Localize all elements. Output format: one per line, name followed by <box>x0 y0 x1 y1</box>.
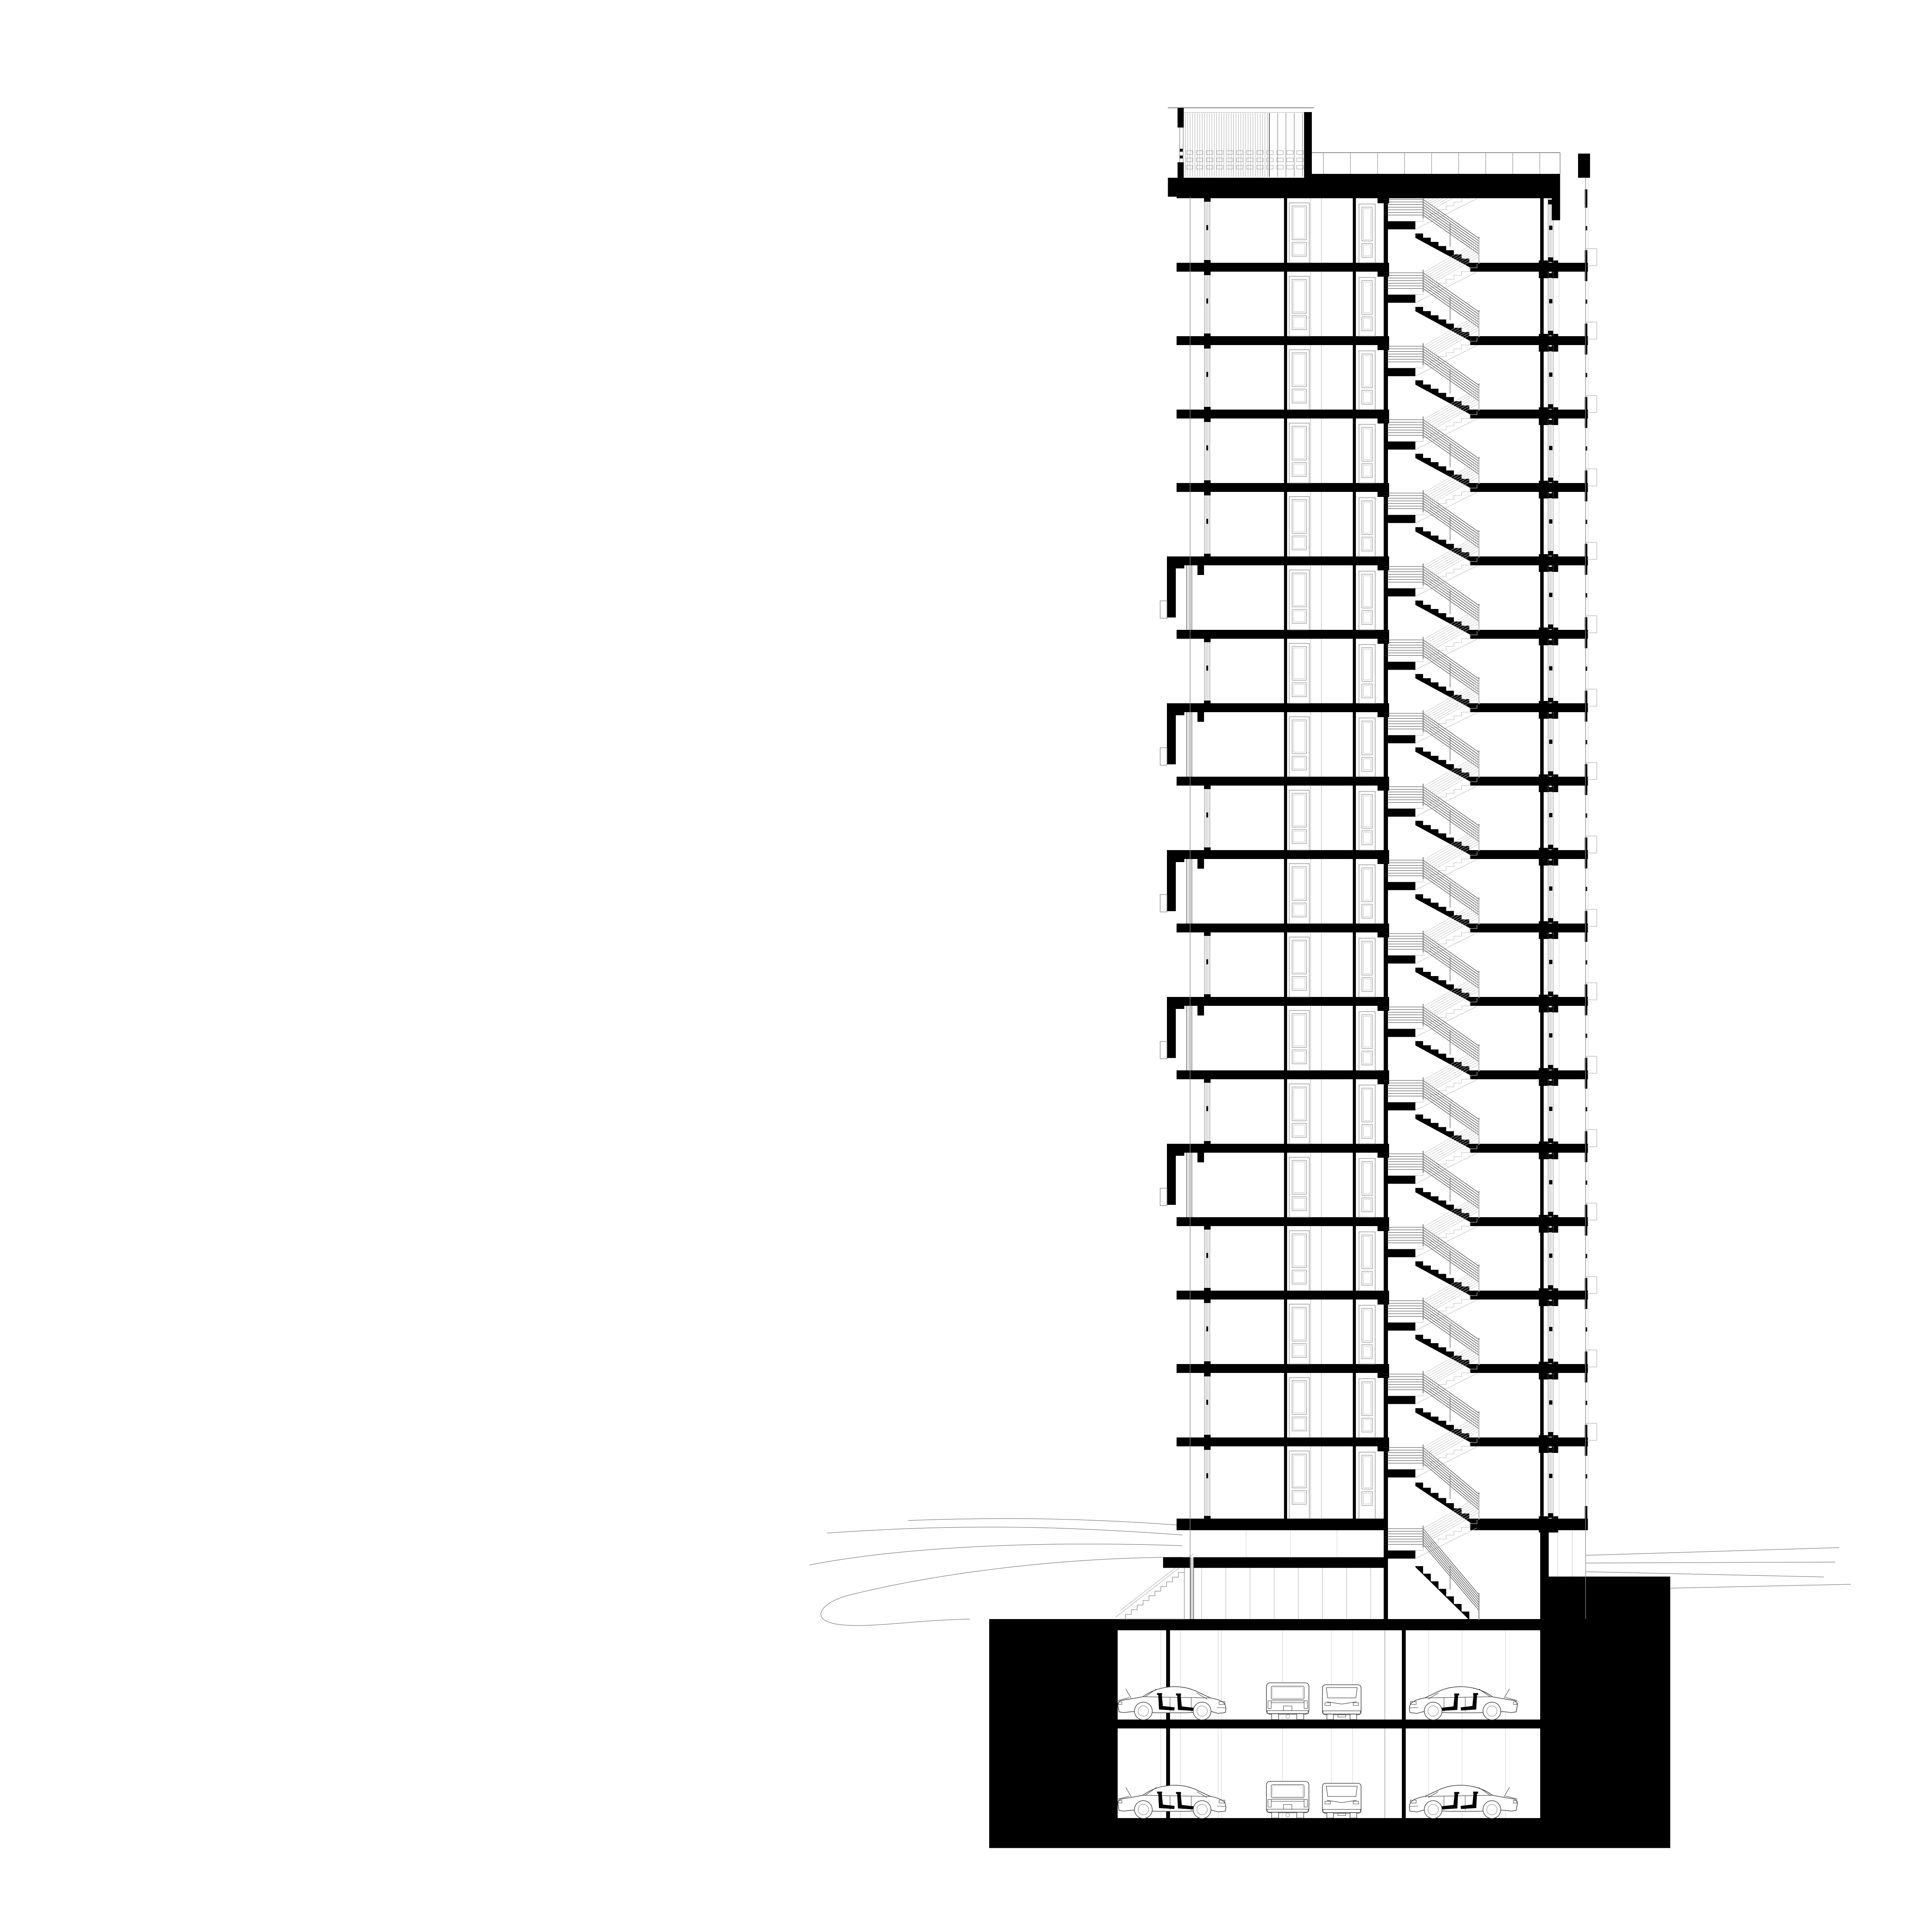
shaft-left-wall <box>1384 786 1388 859</box>
shaft-left-wall <box>1384 639 1388 712</box>
mullion-tick <box>1548 1359 1553 1363</box>
door-panel-tall-inner <box>1294 1456 1305 1487</box>
stair-mid-landing <box>1384 221 1415 230</box>
equipment-dash <box>1287 151 1293 155</box>
door-frame <box>1359 865 1375 924</box>
facade-cut-segment <box>1585 483 1588 502</box>
rail-cable <box>1423 1463 1479 1510</box>
core-glazing <box>1549 418 1552 483</box>
headrest <box>1176 1792 1181 1794</box>
tower-floors <box>1160 189 1597 1533</box>
door-panel-low-inner <box>1294 317 1305 328</box>
door-panel-tall-inner <box>1364 1457 1371 1488</box>
facade-cut-segment <box>1585 336 1588 355</box>
window-sill <box>1204 1516 1211 1519</box>
floor-slab-left <box>1167 997 1388 1006</box>
facade-cut-segment <box>1585 630 1588 648</box>
facade-cut-segment <box>1585 556 1588 575</box>
mullion-tick <box>1548 404 1553 409</box>
door-panel-tall <box>1292 720 1306 754</box>
penthouse-left-wall <box>1178 108 1184 128</box>
floor-slab-left <box>1177 1364 1388 1373</box>
wheel <box>1272 1812 1279 1818</box>
wheel <box>1350 1813 1357 1818</box>
stair-flight-unit <box>1384 900 1479 1006</box>
partition-wall <box>1284 272 1287 336</box>
mullion-tick <box>1549 666 1553 670</box>
window-sill <box>1204 1141 1211 1144</box>
core-glazing <box>1549 1373 1552 1437</box>
window-glass <box>1206 345 1209 410</box>
door-frame <box>1359 791 1375 850</box>
equipment-dash <box>1257 165 1263 169</box>
stair-mid-landing <box>1384 1102 1415 1111</box>
window-head <box>1204 492 1211 495</box>
window-sill <box>1204 407 1211 410</box>
partition-wall <box>1353 1079 1356 1144</box>
garage-cut-column <box>1402 1728 1406 1818</box>
mullion-tick <box>1549 373 1553 377</box>
rail-cable <box>1423 1539 1479 1605</box>
door-panel-low <box>1292 1417 1306 1431</box>
partition-wall <box>1353 565 1356 630</box>
mullion-tick <box>1548 1081 1553 1085</box>
rail-cable <box>1423 794 1479 833</box>
floor-slab-right <box>1470 263 1588 272</box>
facade-cut-segment <box>1585 617 1588 630</box>
facade-cut-segment <box>1585 911 1588 924</box>
window-latch <box>1206 225 1208 230</box>
partition-wall <box>1284 198 1287 263</box>
stair-flight-unit <box>1384 239 1479 345</box>
wheel <box>1327 1714 1333 1720</box>
door-panel-tall <box>1292 279 1306 313</box>
door-frame <box>1359 1379 1375 1437</box>
stair-mid-landing <box>1384 589 1415 597</box>
door-panel-tall <box>1292 646 1306 680</box>
shaft-left-wall <box>1384 932 1388 1006</box>
door-panel-low-inner <box>1294 1492 1305 1503</box>
shaft-left-wall <box>1384 492 1388 565</box>
mullion-tick <box>1548 331 1553 335</box>
ground-grade-line <box>1586 1548 1839 1555</box>
ground-grade-line <box>1586 1562 1835 1563</box>
stair-mid-landing <box>1384 809 1415 817</box>
mullion-tick <box>1548 771 1553 776</box>
rail-cable-far <box>1423 550 1479 582</box>
wall-dot <box>1180 156 1183 159</box>
mullion-tick <box>1549 1254 1553 1258</box>
door-panel-low <box>1292 1123 1306 1137</box>
window-latch <box>1206 813 1208 818</box>
floor-slab-left <box>1177 1070 1388 1079</box>
door-panel-tall-inner <box>1364 1310 1371 1341</box>
door-panel-tall-inner <box>1364 356 1371 386</box>
door-panel-tall-inner <box>1364 576 1371 607</box>
door-panel-tall-inner <box>1294 1015 1305 1046</box>
mullion-tick <box>1549 813 1553 817</box>
door-panel-tall-inner <box>1294 1235 1305 1266</box>
window-latch <box>1206 1473 1208 1478</box>
window-glass <box>1206 1446 1209 1519</box>
mullion-tick <box>1548 624 1553 629</box>
equipment-dash <box>1186 158 1193 162</box>
floor-slab-left <box>1167 1144 1388 1153</box>
facade-cut-segment <box>1585 189 1588 208</box>
floor-slab-left <box>1167 703 1388 712</box>
mullion-tick <box>1548 861 1553 865</box>
door-panel-low <box>1292 756 1306 770</box>
shaft-left-wall <box>1384 1373 1388 1446</box>
facade-cut-segment <box>1585 1070 1588 1089</box>
door-panel-tall <box>1292 1234 1306 1268</box>
window-head <box>1204 639 1211 642</box>
floor-slab-left <box>1177 336 1388 345</box>
window-head <box>1204 198 1211 202</box>
rail-cable <box>1423 1088 1479 1127</box>
shaft-left-wall <box>1384 198 1388 272</box>
earth-retaining-mass-right <box>1549 1577 1670 1848</box>
headrest <box>1176 1694 1181 1696</box>
partition-wall <box>1284 1226 1287 1291</box>
car-van-rear <box>1267 1683 1309 1720</box>
core-glazing <box>1549 1153 1552 1217</box>
facade-cut-segment <box>1585 1291 1588 1309</box>
rail-cable-far <box>1423 1211 1479 1243</box>
door-panel-low <box>1292 1270 1306 1284</box>
core-glazing <box>1549 932 1552 997</box>
rail-cable <box>1423 941 1479 980</box>
shaft-left-wall <box>1384 859 1388 932</box>
mullion-tick <box>1548 787 1553 792</box>
wheel <box>1327 1813 1333 1818</box>
stair-mid-landing <box>1384 442 1415 450</box>
window-glass <box>1206 492 1209 556</box>
door-panel-low-inner <box>1294 1345 1305 1356</box>
lobby-ceiling-slab <box>1470 1519 1588 1530</box>
rail-cable <box>1423 1448 1479 1494</box>
door-panel-low <box>1292 1344 1306 1357</box>
equipment-dash <box>1287 158 1293 162</box>
mullion-tick <box>1548 420 1553 425</box>
core-glazing <box>1549 345 1552 410</box>
door-panel-low <box>1292 242 1306 256</box>
door-panel-tall-inner <box>1364 723 1371 754</box>
floor-slab-right <box>1470 777 1588 786</box>
facade-cut-segment <box>1585 263 1588 281</box>
mullion-tick <box>1549 1474 1553 1478</box>
equipment-dash <box>1216 158 1223 162</box>
rail-cable-far <box>1423 697 1479 729</box>
shaft-left-wall <box>1384 565 1388 639</box>
door-panel-low-inner <box>1364 1199 1371 1210</box>
window-glass <box>1206 786 1209 850</box>
equipment-dash <box>1186 165 1193 169</box>
bay-pier <box>1167 1153 1176 1205</box>
rail-cable-far <box>1423 844 1479 876</box>
wheel <box>1424 1801 1442 1818</box>
rail-cable <box>1423 427 1479 466</box>
shaft-left-wall <box>1384 712 1388 786</box>
shaft-left-wall <box>1384 1446 1388 1527</box>
partition-wall <box>1353 639 1356 703</box>
stair-core <box>1384 165 1544 1628</box>
stair-flight-unit <box>1384 606 1479 713</box>
door-panel-tall-inner <box>1364 649 1371 680</box>
site-ground-lines <box>810 1519 1851 1626</box>
rail-cable <box>1423 1382 1479 1421</box>
facade-cut-segment <box>1585 1437 1588 1456</box>
door-panel-tall-inner <box>1294 354 1305 385</box>
partition-wall <box>1353 1446 1356 1519</box>
mullion-tick <box>1548 1228 1553 1232</box>
door-panel-tall-inner <box>1364 796 1371 827</box>
stair-flight-unit <box>1384 826 1479 933</box>
car-sedan-side <box>1409 1785 1517 1818</box>
door-panel-tall-inner <box>1364 943 1371 974</box>
window-head-box <box>1197 565 1204 575</box>
window-sill <box>1204 1435 1211 1437</box>
penthouse-floor-slab <box>1168 178 1314 197</box>
shaft-left-wall <box>1384 418 1388 492</box>
floor-slab-left <box>1177 630 1388 639</box>
floor-slab-left <box>1167 556 1388 565</box>
lobby-facade-glass <box>1190 1557 1194 1619</box>
stair-flight-unit <box>1384 679 1479 786</box>
rail-cable <box>1423 868 1479 907</box>
rail-cable <box>1423 574 1479 613</box>
stair-mid-landing <box>1384 1396 1415 1404</box>
bay-pier <box>1167 712 1176 764</box>
shaft-left-wall <box>1384 1006 1388 1079</box>
floor-slab-right <box>1470 630 1588 639</box>
door-panel-low-inner <box>1364 759 1371 770</box>
equipment-dash <box>1216 165 1223 169</box>
door-panel-low <box>1292 1050 1306 1064</box>
door-panel-low-inner <box>1364 832 1371 843</box>
mullion-tick <box>1548 273 1553 278</box>
facade-cut-segment <box>1585 924 1588 942</box>
stair-flight-unit <box>1384 1046 1479 1153</box>
floor-slab-left <box>1177 263 1388 272</box>
door-panel-low <box>1292 683 1306 697</box>
wheel <box>1193 1801 1211 1818</box>
equipment-dash <box>1226 151 1233 155</box>
door-frame <box>1359 351 1375 410</box>
rail-cable-far <box>1423 1064 1479 1096</box>
partition-wall <box>1353 712 1356 777</box>
floor-slab-right <box>1470 410 1588 418</box>
mullion-tick <box>1548 918 1553 923</box>
window-sill <box>1204 994 1211 997</box>
door-frame <box>1359 1305 1375 1364</box>
facade-cut-segment <box>1585 410 1588 428</box>
window-sill <box>1204 847 1211 850</box>
facade-cut-segment <box>1585 1144 1588 1162</box>
mullion-tick <box>1549 446 1553 450</box>
mullion-tick <box>1548 493 1553 498</box>
door-panel-low-inner <box>1294 978 1305 989</box>
partition-wall <box>1353 932 1356 997</box>
window-glass <box>1206 932 1209 997</box>
rail-cable <box>1423 1461 1479 1507</box>
ground-contour-line <box>821 1596 970 1626</box>
door-panel-low-inner <box>1364 1420 1371 1431</box>
window-sill <box>1204 1361 1211 1364</box>
equipment-dash <box>1247 165 1253 169</box>
door-panel-tall <box>1292 426 1306 460</box>
window-latch <box>1206 1400 1208 1405</box>
window-latch <box>1206 666 1208 671</box>
mullion-tick <box>1548 347 1553 351</box>
stair-mid-landing <box>1384 295 1415 303</box>
door-panel-tall-inner <box>1294 721 1305 752</box>
partition-wall <box>1284 859 1287 924</box>
bay-window-box <box>1160 601 1167 618</box>
equipment-dash <box>1267 151 1273 155</box>
mullion-tick <box>1549 886 1553 891</box>
rail-cable-far <box>1423 991 1479 1023</box>
window-head <box>1204 932 1211 936</box>
window-glass <box>1206 1226 1209 1291</box>
floor-slab-right <box>1470 1070 1588 1079</box>
core-glazing <box>1549 565 1552 630</box>
rail-cable-far <box>1423 1284 1479 1317</box>
core-glazing <box>1549 712 1552 777</box>
partition-wall <box>1353 418 1356 483</box>
door-panel-low-inner <box>1294 611 1305 622</box>
van-body <box>1323 1685 1361 1715</box>
door-panel-low-inner <box>1294 1419 1305 1429</box>
mullion-tick <box>1548 640 1553 645</box>
facade-cut-segment <box>1585 850 1588 869</box>
partition-wall <box>1353 272 1356 336</box>
drawing-sheet <box>0 0 1932 1917</box>
wheel <box>1272 1714 1279 1720</box>
door-panel-low <box>1292 1490 1306 1504</box>
rail-cable-far <box>1423 477 1479 509</box>
door-panel-low-inner <box>1364 1126 1371 1137</box>
headrest <box>1157 1693 1162 1695</box>
stair-units <box>1384 165 1479 1628</box>
facade-cut-segment <box>1585 324 1588 337</box>
facade-cut-segment <box>1585 1205 1588 1218</box>
door-panel-tall <box>1292 1454 1306 1488</box>
core-glazing <box>1549 1446 1552 1519</box>
car-van-rear <box>1267 1781 1309 1818</box>
partition-wall <box>1284 1079 1287 1144</box>
mullion-tick <box>1548 934 1553 939</box>
door-panel-tall-inner <box>1364 502 1371 533</box>
rail-cable <box>1423 1458 1479 1505</box>
facade-cut-segment <box>1585 471 1588 483</box>
shaft-right-wall <box>1540 191 1544 1619</box>
equipment-dash <box>1226 165 1233 169</box>
stair-flight-unit <box>1384 753 1479 859</box>
equipment-dash <box>1226 158 1233 162</box>
door-panel-low <box>1292 830 1306 844</box>
door-panel-tall <box>1292 500 1306 534</box>
door-panel-tall <box>1292 206 1306 240</box>
mullion-tick <box>1548 1301 1553 1306</box>
window-latch <box>1206 1253 1208 1258</box>
door-panel-tall-inner <box>1294 575 1305 605</box>
window-sill <box>1204 554 1211 556</box>
rail-cable-far <box>1423 1358 1479 1390</box>
rail-cable <box>1423 1235 1479 1274</box>
door-frame <box>1359 718 1375 777</box>
door-frame <box>1359 571 1375 630</box>
mullion-tick <box>1548 698 1553 703</box>
window-head-box <box>1197 1006 1204 1015</box>
window-sill <box>1204 260 1211 263</box>
door-panel-low-inner <box>1364 318 1371 329</box>
partition-wall <box>1284 932 1287 997</box>
door-panel-low-inner <box>1364 1053 1371 1063</box>
window-head <box>1204 1446 1211 1450</box>
bay-pier <box>1167 565 1176 617</box>
partition-wall <box>1284 1153 1287 1217</box>
partition-wall <box>1284 565 1287 630</box>
penthouse-right-wall <box>1304 112 1312 178</box>
facade-cut-segment <box>1585 250 1588 263</box>
equipment-dash <box>1236 151 1243 155</box>
window-glass <box>1206 418 1209 483</box>
facade-cut-segment <box>1585 1364 1588 1383</box>
partition-wall <box>1284 418 1287 483</box>
ground-grade-line <box>1670 1584 1851 1588</box>
rail-cable <box>1423 1015 1479 1054</box>
window-head-box <box>1197 859 1204 869</box>
window-glass <box>1206 1373 1209 1437</box>
door-panel-tall <box>1292 1014 1306 1048</box>
facade-cut-segment <box>1585 1217 1588 1236</box>
stair-mid-landing <box>1384 1249 1415 1257</box>
door-panel-low-inner <box>1294 905 1305 915</box>
floor-slab-right <box>1470 1437 1588 1446</box>
door-panel-low-inner <box>1294 684 1305 695</box>
headrest <box>1454 1792 1459 1794</box>
door-panel-tall <box>1292 940 1306 974</box>
stair-flight-unit <box>1384 532 1479 639</box>
wall-dot <box>1180 149 1183 152</box>
bay-pier <box>1167 1006 1176 1058</box>
rail-cable <box>1423 1450 1479 1497</box>
line <box>1126 1788 1131 1797</box>
stair-mid-landing <box>1384 368 1415 376</box>
core-glazing <box>1549 1079 1552 1144</box>
equipment-dash <box>1257 151 1263 155</box>
door-panel-tall-inner <box>1364 209 1371 240</box>
door-panel-tall-inner <box>1294 942 1305 973</box>
rail-cable-far <box>1423 1431 1479 1463</box>
stair-mid-landing <box>1384 956 1415 964</box>
door-panel-tall-inner <box>1364 1090 1371 1121</box>
door-frame <box>1359 204 1375 263</box>
window-head <box>1204 1300 1211 1303</box>
facade-cut-segment <box>1585 544 1588 557</box>
floor-slab-left <box>1177 1437 1388 1446</box>
wheel <box>1193 1702 1211 1720</box>
door-panel-low-inner <box>1294 538 1305 548</box>
door-panel-low-inner <box>1364 906 1371 917</box>
mullion-tick <box>1548 1154 1553 1159</box>
door-panel-low-inner <box>1294 1125 1305 1136</box>
floor-slab-right <box>1470 556 1588 565</box>
door-panel-tall-inner <box>1364 1237 1371 1267</box>
facade-cut-segment <box>1585 1131 1588 1144</box>
door-panel-tall-inner <box>1294 1309 1305 1340</box>
